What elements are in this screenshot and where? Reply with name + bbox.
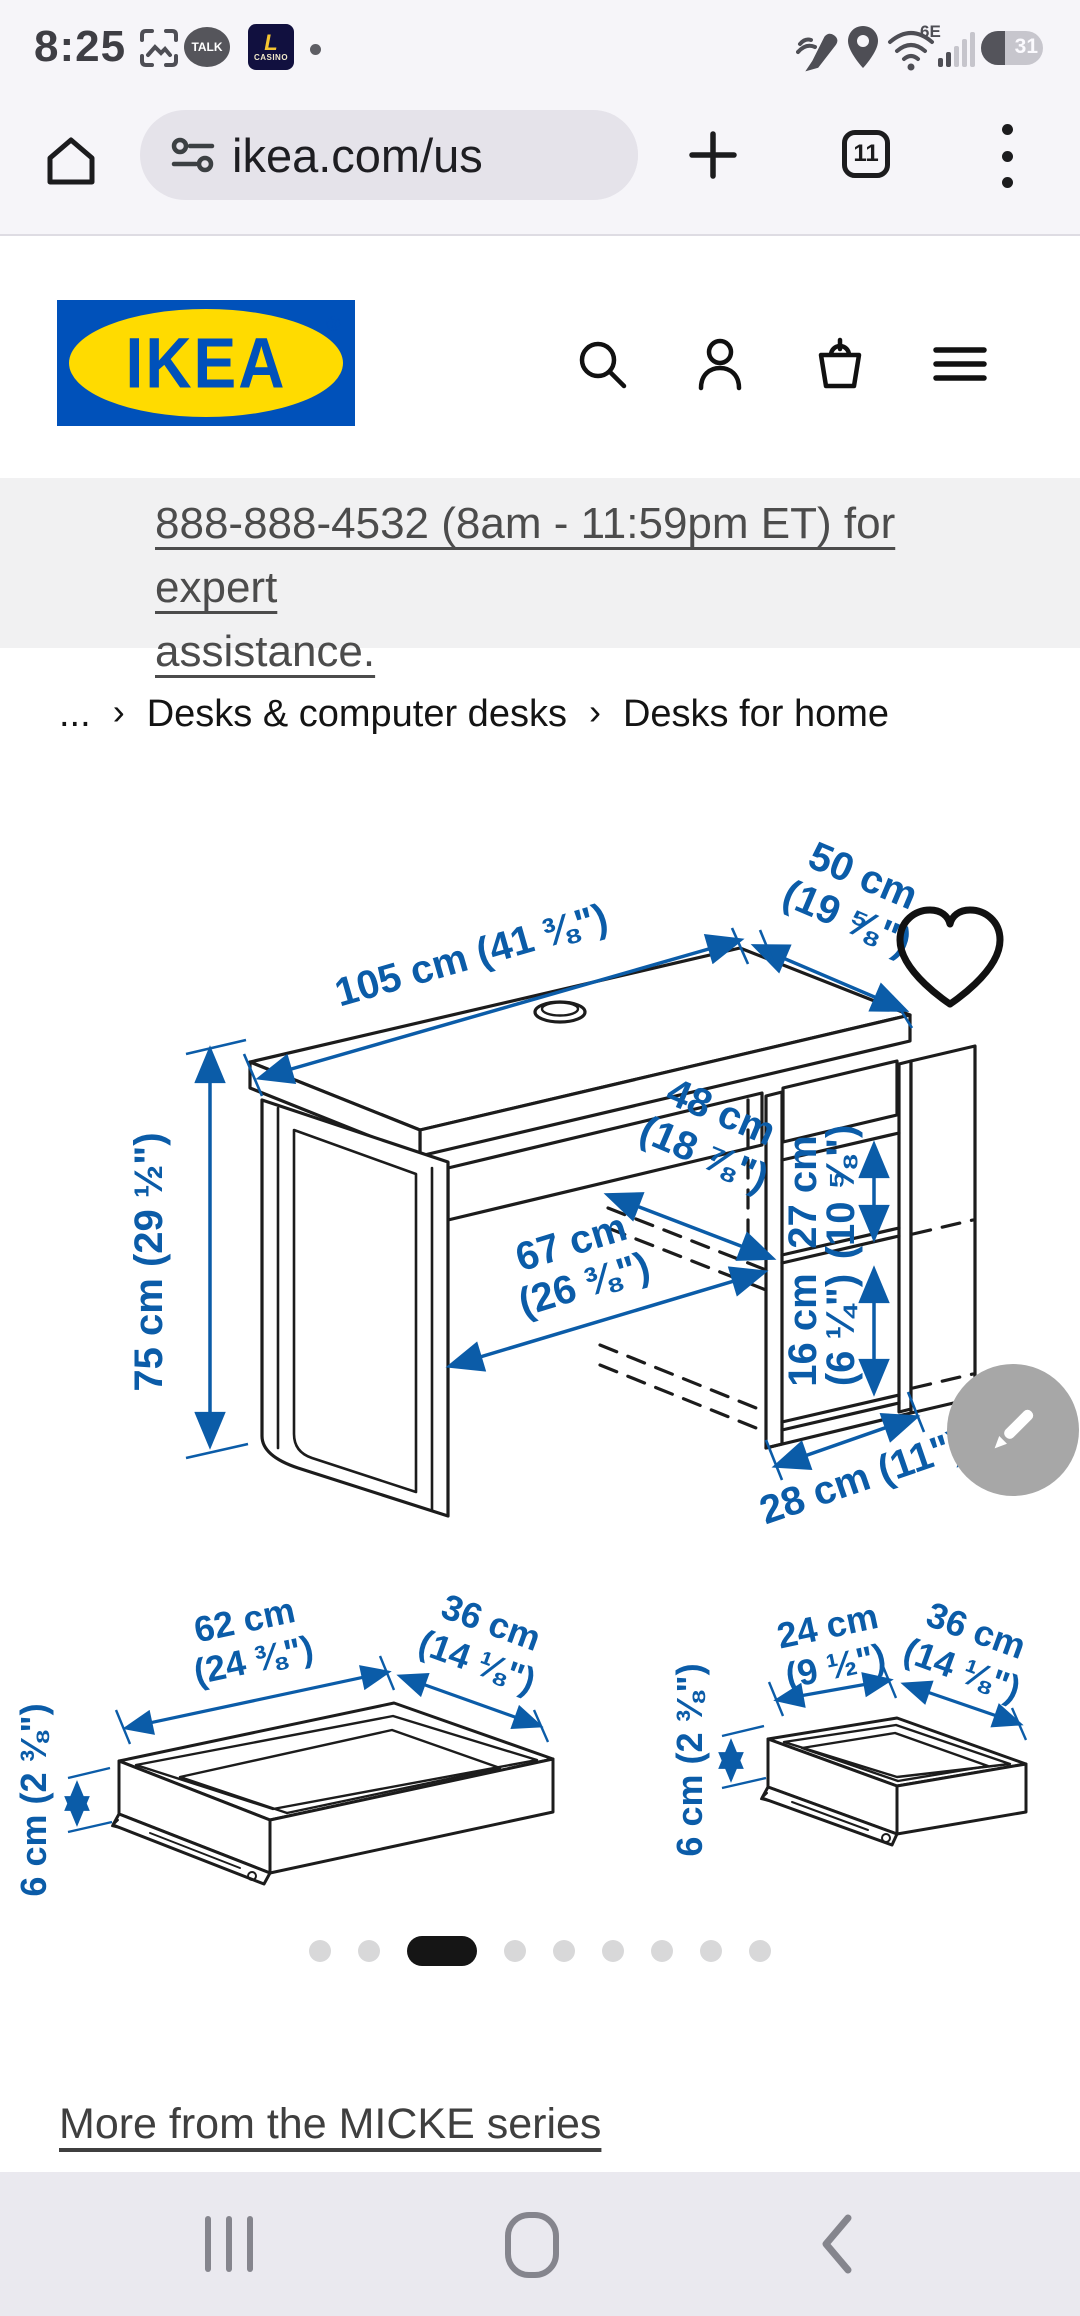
dim-drawer-large-height: 6 cm (2 ⅜") xyxy=(13,1703,54,1896)
location-icon xyxy=(846,24,880,70)
carousel-dot[interactable] xyxy=(602,1940,624,1962)
product-dimension-image[interactable]: 105 cm (41 ⅜") 50 cm (19 ⅝") 75 cm (29 ½… xyxy=(0,800,1080,1590)
breadcrumb-item-desks[interactable]: Desks & computer desks xyxy=(147,693,567,736)
url-fade xyxy=(558,110,638,200)
edit-fab-button[interactable] xyxy=(947,1364,1079,1496)
svg-text:(10 ⅝"): (10 ⅝") xyxy=(819,1125,863,1260)
screenshot-icon xyxy=(138,27,180,69)
new-tab-button[interactable] xyxy=(686,128,740,182)
menu-button[interactable] xyxy=(932,336,988,392)
site-settings-icon[interactable] xyxy=(170,134,216,176)
svg-text:(6 ¼"): (6 ¼") xyxy=(819,1274,863,1386)
breadcrumb-item-desks-home[interactable]: Desks for home xyxy=(623,693,889,736)
notification-dot-icon xyxy=(310,44,321,55)
battery-icon: 31 xyxy=(981,31,1043,65)
battery-fill xyxy=(981,31,1005,65)
dim-desk-height: 75 cm (29 ½") xyxy=(127,1132,171,1391)
breadcrumb: ... › Desks & computer desks › Desks for… xyxy=(0,686,1080,742)
url-bar[interactable]: ikea.com/us xyxy=(140,110,638,200)
chevron-right-icon: › xyxy=(113,691,125,737)
dim-unit-width: 28 cm (11") xyxy=(754,1422,969,1533)
carousel-dot[interactable] xyxy=(358,1940,380,1962)
carousel-dot[interactable] xyxy=(504,1940,526,1962)
drawer-dimension-image[interactable]: 62 cm (24 ⅜") 36 cm (14 ⅛") 6 cm (2 ⅜") xyxy=(0,1580,1080,1910)
phone-assistance-link[interactable]: 888-888-4532 (8am - 11:59pm ET) for expe… xyxy=(155,478,1010,684)
browser-menu-button[interactable] xyxy=(992,124,1022,188)
browser-toolbar: ikea.com/us 11 xyxy=(0,96,1080,236)
stylus-icon xyxy=(796,28,840,72)
carousel-dot[interactable] xyxy=(309,1940,331,1962)
recents-button[interactable] xyxy=(205,2216,257,2272)
carousel-dot[interactable] xyxy=(700,1940,722,1962)
status-bar: 8:25 TALK L CASINO xyxy=(0,0,1080,96)
carousel-dot-active[interactable] xyxy=(407,1936,477,1966)
chevron-right-icon: › xyxy=(589,691,601,737)
phone-screen: 8:25 TALK L CASINO xyxy=(0,0,1080,2316)
assistance-banner: 888-888-4532 (8am - 11:59pm ET) for expe… xyxy=(0,478,1080,648)
tab-switcher-button[interactable]: 11 xyxy=(842,130,890,178)
ikea-logo[interactable]: IKEA ® xyxy=(57,300,355,426)
url-text: ikea.com/us xyxy=(232,128,483,183)
tab-count: 11 xyxy=(853,140,878,168)
home-button[interactable] xyxy=(44,134,98,188)
site-header: IKEA ® xyxy=(0,236,1080,478)
cart-button[interactable] xyxy=(812,336,868,392)
casino-app-icon: L CASINO xyxy=(248,24,294,70)
dim-drawer-small-height: 6 cm (2 ⅜") xyxy=(669,1663,710,1856)
image-carousel-dots xyxy=(0,1934,1080,1968)
home-nav-button[interactable] xyxy=(505,2212,559,2278)
clock: 8:25 xyxy=(34,22,126,72)
account-button[interactable] xyxy=(692,336,748,392)
breadcrumb-ellipsis[interactable]: ... xyxy=(59,693,91,736)
search-button[interactable] xyxy=(574,336,630,392)
pencil-icon xyxy=(981,1398,1045,1462)
signal-icon xyxy=(938,30,976,68)
more-from-series-link[interactable]: More from the MICKE series xyxy=(59,2100,601,2149)
carousel-dot[interactable] xyxy=(749,1940,771,1962)
back-button[interactable] xyxy=(818,2212,854,2276)
talk-app-icon: TALK xyxy=(184,27,230,67)
carousel-dot[interactable] xyxy=(651,1940,673,1962)
carousel-dot[interactable] xyxy=(553,1940,575,1962)
